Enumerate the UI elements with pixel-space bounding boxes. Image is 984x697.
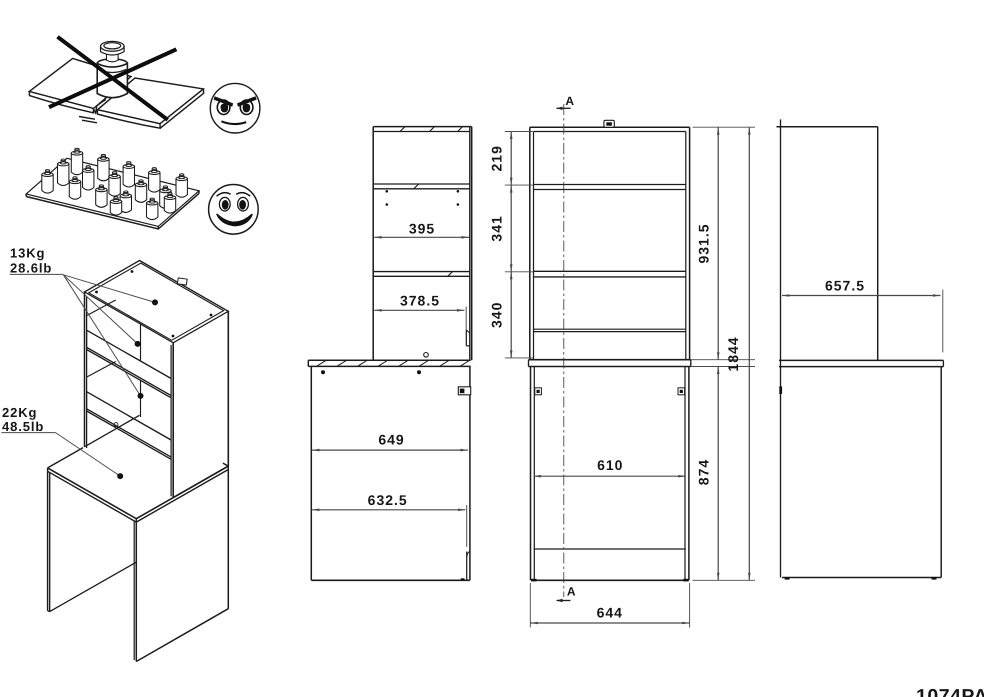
- svg-text:874: 874: [696, 459, 712, 485]
- svg-text:219: 219: [488, 145, 504, 171]
- svg-text:1074PA2: 1074PA2: [916, 686, 984, 697]
- svg-text:649: 649: [378, 432, 404, 448]
- svg-text:610: 610: [597, 457, 623, 473]
- svg-text:A: A: [565, 94, 574, 108]
- svg-text:931.5: 931.5: [696, 223, 712, 263]
- svg-text:632.5: 632.5: [368, 492, 408, 508]
- svg-text:340: 340: [488, 302, 504, 328]
- svg-text:395: 395: [409, 221, 435, 237]
- svg-text:644: 644: [597, 605, 623, 621]
- svg-text:22Kg: 22Kg: [2, 405, 37, 420]
- svg-text:341: 341: [488, 215, 504, 241]
- svg-text:48.5lb: 48.5lb: [2, 419, 44, 434]
- svg-text:13Kg: 13Kg: [10, 246, 45, 261]
- svg-text:A: A: [567, 585, 576, 599]
- svg-text:657.5: 657.5: [825, 278, 865, 294]
- svg-text:1844: 1844: [725, 336, 741, 371]
- svg-text:378.5: 378.5: [400, 293, 440, 309]
- svg-text:28.6lb: 28.6lb: [10, 261, 52, 276]
